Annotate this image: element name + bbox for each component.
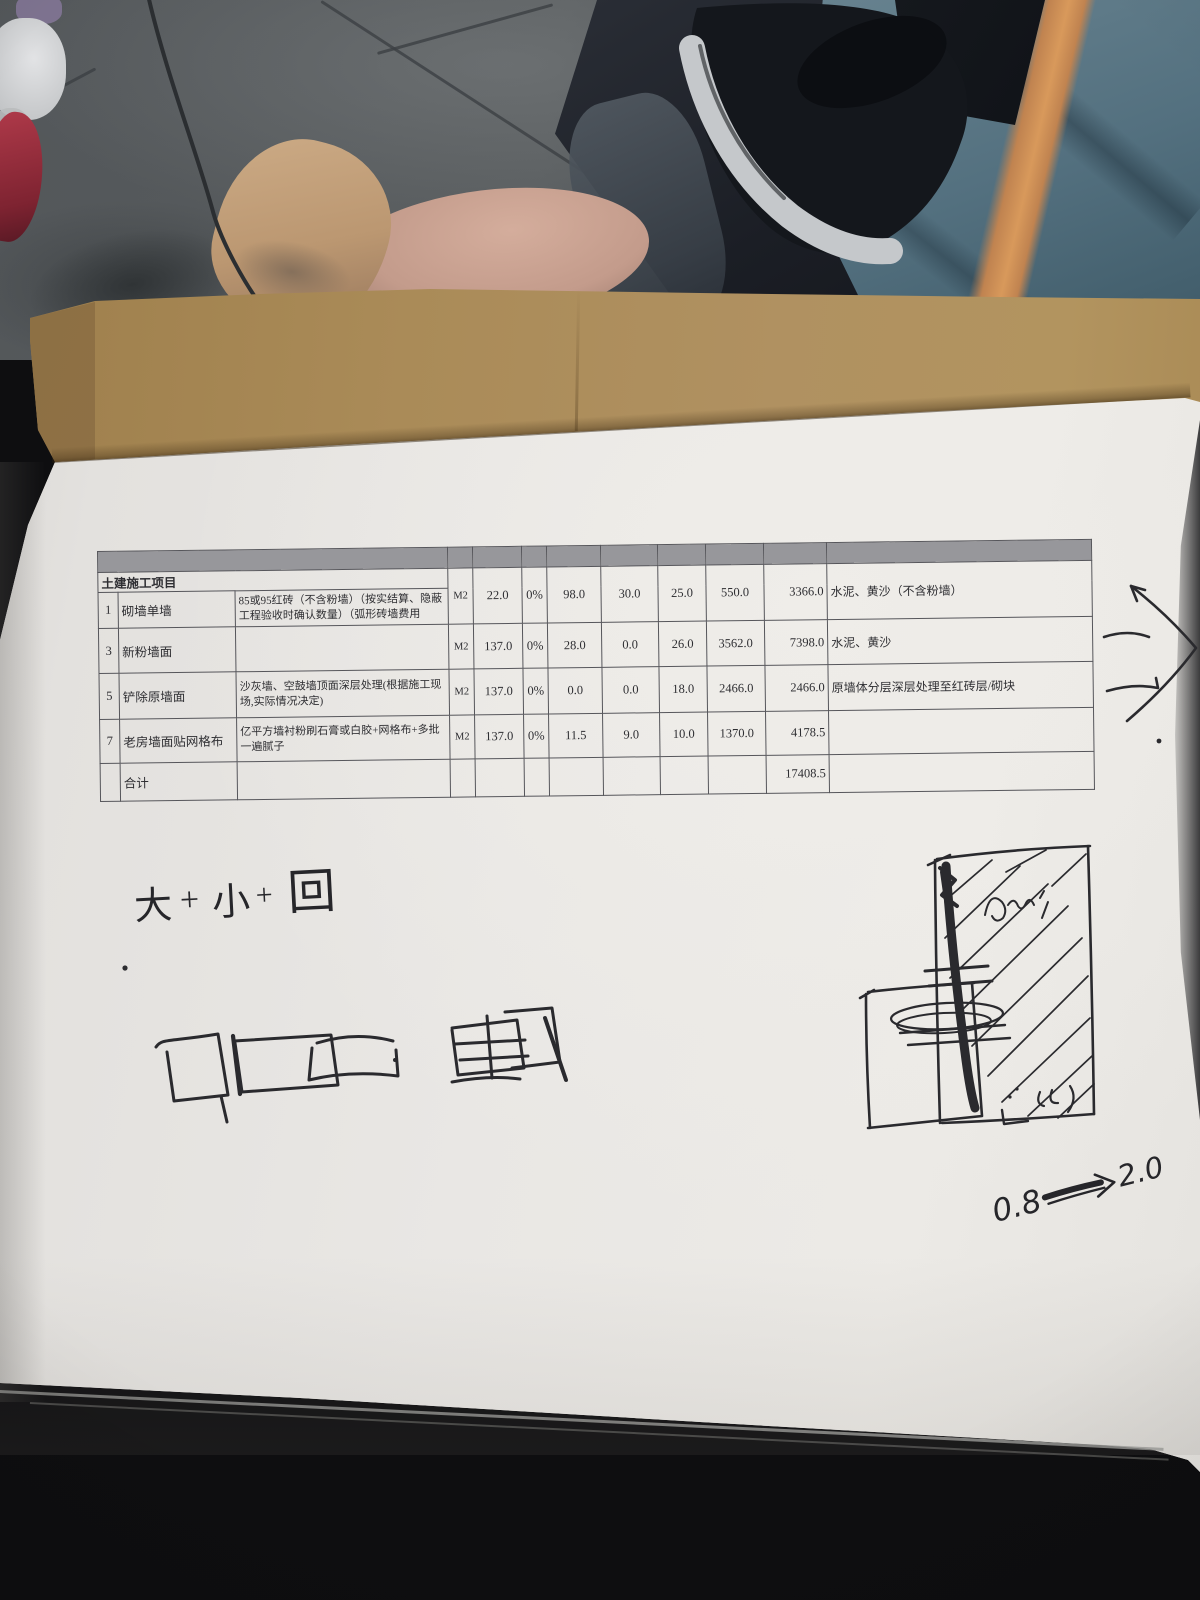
cell-v4 xyxy=(708,755,766,794)
cell-note xyxy=(829,751,1094,792)
cell-v3: 25.0 xyxy=(658,565,707,622)
cell-v4: 550.0 xyxy=(706,564,765,621)
cell-qty: 22.0 xyxy=(473,567,523,624)
cell-v3 xyxy=(660,756,708,795)
cell-loss xyxy=(524,758,549,796)
cell-num xyxy=(100,763,120,801)
cell-unit: M2 xyxy=(448,624,474,669)
quotation-table: 土建施工项目 M2 22.0 0% 98.0 30.0 25.0 550.0 3… xyxy=(97,539,1096,802)
cell-qty: 137.0 xyxy=(474,668,524,715)
cell-qty xyxy=(475,758,524,797)
cell-v1: 0.0 xyxy=(548,667,603,714)
cell-v4: 3562.0 xyxy=(706,620,765,666)
cable xyxy=(148,0,266,312)
cell-total: 2466.0 xyxy=(765,665,829,712)
photo-of-quotation-sheet: 土建施工项目 M2 22.0 0% 98.0 30.0 25.0 550.0 3… xyxy=(0,0,1200,1600)
cell-v2: 0.0 xyxy=(602,667,660,714)
paper-shading xyxy=(0,1255,1200,1455)
header-cell xyxy=(763,543,826,565)
cell-v3: 18.0 xyxy=(659,666,708,713)
cell-name: 铲除原墙面 xyxy=(119,672,237,719)
quotation-table-grid: 土建施工项目 M2 22.0 0% 98.0 30.0 25.0 550.0 3… xyxy=(97,539,1095,802)
cell-v3: 26.0 xyxy=(658,621,707,667)
cell-note: 水泥、黄沙（不含粉墙） xyxy=(827,560,1093,619)
cell-v1 xyxy=(549,757,603,796)
cell-v1: 28.0 xyxy=(547,622,602,668)
cell-name: 砌墙单墙 xyxy=(118,591,235,628)
cell-unit: M2 xyxy=(450,715,476,759)
cell-note: 原墙体分层深层处理至红砖层/砌块 xyxy=(828,661,1094,710)
total-label-cell: 合计 xyxy=(120,762,237,801)
header-cell xyxy=(600,545,657,567)
cell-loss: 0% xyxy=(524,714,550,758)
cell-name: 老房墙面贴网格布 xyxy=(120,718,238,763)
cell-loss: 0% xyxy=(522,567,548,623)
cell-num: 1 xyxy=(98,592,118,628)
cell-loss: 0% xyxy=(522,623,548,668)
cell-v2 xyxy=(603,757,660,796)
cell-num: 5 xyxy=(99,673,120,719)
cell-v1: 11.5 xyxy=(549,713,604,758)
header-cell xyxy=(657,544,705,566)
cell-v4: 2466.0 xyxy=(707,665,766,712)
cell-unit xyxy=(450,759,475,797)
header-cell xyxy=(521,546,546,567)
header-cell xyxy=(546,545,600,567)
cell-name: 新粉墙面 xyxy=(118,627,236,673)
header-cell xyxy=(447,547,472,568)
cell-v3: 10.0 xyxy=(660,712,709,757)
cell-note xyxy=(829,707,1095,754)
cell-qty: 137.0 xyxy=(475,714,525,759)
cell-total: 7398.0 xyxy=(764,620,828,666)
cell-desc: 85或95红砖（不含粉墙）（按实结算、隐蔽工程验收时确认数量）（弧形砖墙费用 xyxy=(235,588,448,627)
cell-v2: 9.0 xyxy=(603,713,661,758)
cell-v4: 1370.0 xyxy=(708,711,767,756)
cell-qty: 137.0 xyxy=(473,623,523,669)
cell-note: 水泥、黄沙 xyxy=(827,616,1093,664)
cell-loss: 0% xyxy=(523,668,549,714)
cell-desc: 沙灰墙、空鼓墙顶面深层处理(根据施工现场,实际情况决定) xyxy=(236,669,450,718)
cell-unit: M2 xyxy=(449,669,475,715)
cell-desc: 亿平方墙衬粉刷石膏或白胶+网格布+多批一遍腻子 xyxy=(237,715,451,762)
cell-desc xyxy=(237,759,450,800)
header-cell xyxy=(472,546,521,568)
cell-v1: 98.0 xyxy=(547,566,602,623)
cell-unit: M2 xyxy=(448,568,474,624)
cell-total: 3366.0 xyxy=(764,564,828,621)
grand-total-cell: 17408.5 xyxy=(766,755,829,794)
cell-desc xyxy=(235,624,449,672)
header-cell xyxy=(705,543,763,565)
cell-num: 3 xyxy=(98,628,119,673)
cell-v2: 30.0 xyxy=(601,566,659,623)
cell-num: 7 xyxy=(100,719,121,763)
cell-v2: 0.0 xyxy=(601,622,659,668)
cell-total: 4178.5 xyxy=(766,711,830,756)
